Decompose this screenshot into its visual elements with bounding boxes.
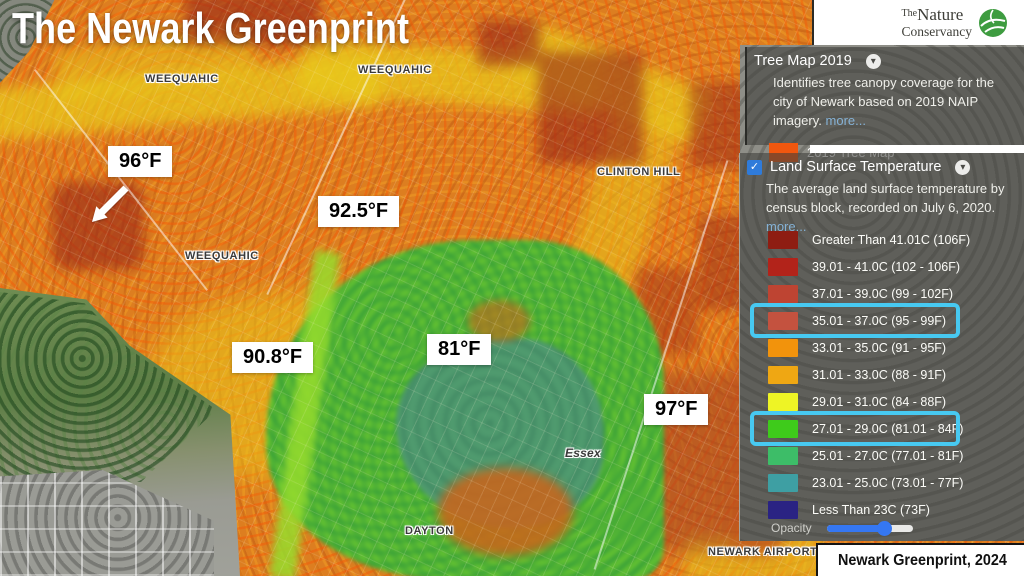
opacity-slider[interactable] <box>827 525 913 532</box>
logo-word-nature: Nature <box>917 5 963 24</box>
layer-checkbox[interactable]: ✓ <box>747 160 762 175</box>
lst-description-text: The average land surface temperature by … <box>766 181 1004 215</box>
nature-conservancy-logo: TheNature Conservancy <box>812 0 1024 46</box>
opacity-slider-fill <box>827 525 885 532</box>
legend-class-label: Greater Than 41.01C (106F) <box>812 233 970 247</box>
legend-class-label: 27.01 - 29.0C (81.01 - 84F) <box>812 422 963 436</box>
legend-class-row: Greater Than 41.01C (106F) <box>754 226 956 253</box>
logo-word-conservancy: Conservancy <box>902 25 972 39</box>
place-label: WEEQUAHIC <box>145 73 219 85</box>
legend-class-row: 35.01 - 37.0C (95 - 99F) <box>754 307 956 334</box>
legend-class-label: Less Than 23C (73F) <box>812 503 930 517</box>
legend-color-swatch <box>768 258 798 276</box>
tree-map-panel-title: Tree Map 2019 <box>754 53 852 69</box>
legend-color-swatch <box>768 393 798 411</box>
temperature-annotation: 90.8°F <box>232 342 313 373</box>
temperature-annotation: 81°F <box>427 334 491 365</box>
place-label: NEWARK AIRPORT <box>708 546 817 558</box>
tree-map-more-link[interactable]: more... <box>826 113 866 128</box>
temperature-annotation: 97°F <box>644 394 708 425</box>
legend-class-row: 23.01 - 25.0C (73.01 - 77F) <box>754 469 956 496</box>
legend-class-row: 25.01 - 27.0C (77.01 - 81F) <box>754 442 956 469</box>
page-title: The Newark Greenprint <box>12 4 409 54</box>
tree-map-panel: Tree Map 2019 ▾ Identifies tree canopy c… <box>745 47 1024 145</box>
legend-color-swatch <box>768 312 798 330</box>
legend-class-label: 23.01 - 25.0C (73.01 - 77F) <box>812 476 963 490</box>
chevron-down-icon[interactable]: ▾ <box>955 160 970 175</box>
legend-class-label: 33.01 - 35.0C (91 - 95F) <box>812 341 946 355</box>
legend-class-label: 35.01 - 37.0C (95 - 99F) <box>812 314 946 328</box>
opacity-slider-thumb[interactable] <box>877 521 892 536</box>
lst-panel: ✓ Land Surface Temperature ▾ The average… <box>739 153 1024 541</box>
tree-map-description-text: Identifies tree canopy coverage for the … <box>773 75 994 128</box>
temperature-annotation: 96°F <box>108 146 172 177</box>
annotation-arrow-icon <box>86 182 136 228</box>
lst-panel-title: Land Surface Temperature <box>770 159 941 175</box>
legend-class-label: 31.01 - 33.0C (88 - 91F) <box>812 368 946 382</box>
legend-class-row: 39.01 - 41.0C (102 - 106F) <box>754 253 956 280</box>
temperature-annotation: 92.5°F <box>318 196 399 227</box>
legend-class-label: 37.01 - 39.0C (99 - 102F) <box>812 287 953 301</box>
lst-panel-header[interactable]: ✓ Land Surface Temperature ▾ <box>740 153 1024 177</box>
lst-legend-list: Greater Than 41.01C (106F)39.01 - 41.0C … <box>740 226 956 523</box>
legend-color-swatch <box>768 339 798 357</box>
tree-map-panel-header[interactable]: Tree Map 2019 ▾ <box>747 47 1024 71</box>
place-label: DAYTON <box>405 525 454 537</box>
globe-leaf-icon <box>978 8 1008 38</box>
place-label: WEEQUAHIC <box>185 250 259 262</box>
legend-color-swatch <box>768 420 798 438</box>
opacity-label: Opacity <box>771 521 812 535</box>
legend-class-row: 31.01 - 33.0C (88 - 91F) <box>754 361 956 388</box>
place-label: WEEQUAHIC <box>358 64 432 76</box>
slide: WEEQUAHICWEEQUAHICWEEQUAHICCLINTON HILLE… <box>0 0 1024 576</box>
chevron-down-icon[interactable]: ▾ <box>866 54 881 69</box>
legend-class-label: 25.01 - 27.0C (77.01 - 81F) <box>812 449 963 463</box>
attribution-box: Newark Greenprint, 2024 <box>816 543 1024 576</box>
legend-color-swatch <box>768 501 798 519</box>
legend-color-swatch <box>768 474 798 492</box>
legend-class-row: 33.01 - 35.0C (91 - 95F) <box>754 334 956 361</box>
attribution-text: Newark Greenprint, 2024 <box>838 552 1007 570</box>
legend-class-row: 27.01 - 29.0C (81.01 - 84F) <box>754 415 956 442</box>
legend-color-swatch <box>768 231 798 249</box>
legend-color-swatch <box>768 285 798 303</box>
legend-class-row: Less Than 23C (73F) <box>754 496 956 523</box>
legend-color-swatch <box>768 366 798 384</box>
tree-map-description: Identifies tree canopy coverage for the … <box>747 71 1024 131</box>
legend-class-row: 37.01 - 39.0C (99 - 102F) <box>754 280 956 307</box>
legend-class-row: 29.01 - 31.0C (84 - 88F) <box>754 388 956 415</box>
opacity-control: Opacity <box>740 521 1024 535</box>
logo-wordmark: TheNature Conservancy <box>902 6 972 39</box>
place-label: Essex <box>565 446 601 460</box>
legend-color-swatch <box>768 447 798 465</box>
legend-class-label: 29.01 - 31.0C (84 - 88F) <box>812 395 946 409</box>
logo-word-the: The <box>902 8 918 19</box>
legend-class-label: 39.01 - 41.0C (102 - 106F) <box>812 260 960 274</box>
place-label: CLINTON HILL <box>597 166 680 178</box>
